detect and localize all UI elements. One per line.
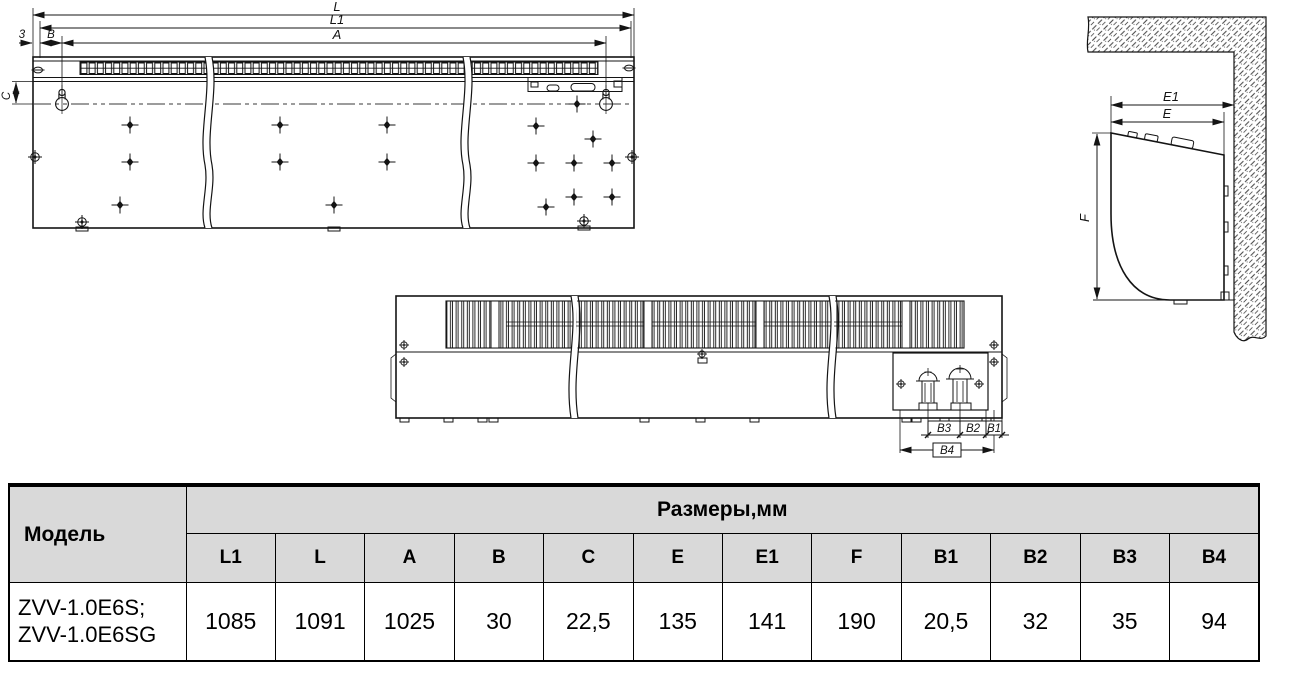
table-row: ZVV-1.0E6S; ZVV-1.0E6SG 1085 1091 1025 3… <box>9 583 1259 662</box>
dimensions-table: Модель Размеры,мм L1 L A B C E E1 F B1 B… <box>8 483 1260 662</box>
value-cell-A: 1025 <box>365 583 454 662</box>
value-cell-E1: 141 <box>722 583 811 662</box>
dim-label-E1: E1 <box>1163 89 1179 104</box>
col-header-B4: B4 <box>1169 534 1259 583</box>
col-header-F: F <box>812 534 901 583</box>
datasheet-page: L L1 A 3 B C <box>0 0 1314 686</box>
value-cell-B2: 32 <box>991 583 1080 662</box>
dim-label-B4: B4 <box>940 445 954 457</box>
break-lines <box>203 57 472 228</box>
cable-entry-box <box>893 353 988 410</box>
value-cell-B1: 20,5 <box>901 583 990 662</box>
value-cell-B3: 35 <box>1080 583 1169 662</box>
front-extension-lines <box>12 8 634 104</box>
bottom-view-drawing: B3 B2 B1 B4 <box>388 288 1013 468</box>
col-header-B3: B3 <box>1080 534 1169 583</box>
dim-label-3: 3 <box>19 29 26 41</box>
model-name-line2: ZVV-1.0E6SG <box>18 622 185 648</box>
keyhole-slot-icon <box>56 85 69 114</box>
wall-section <box>1087 17 1266 341</box>
col-header-E: E <box>633 534 722 583</box>
value-cell-C: 22,5 <box>544 583 633 662</box>
front-dimensions: L L1 A 3 B C <box>1 0 634 103</box>
dimensions-group-header: Размеры,мм <box>186 485 1259 534</box>
col-header-L1: L1 <box>186 534 275 583</box>
dim-label-A: A <box>332 27 342 42</box>
value-cell-B4: 94 <box>1169 583 1259 662</box>
cable-gland-large <box>946 365 974 403</box>
dim-label-L1: L1 <box>330 12 344 27</box>
bottom-feet <box>400 418 991 422</box>
model-cell: ZVV-1.0E6S; ZVV-1.0E6SG <box>9 583 186 662</box>
mounting-hole-marks <box>28 96 639 232</box>
side-view-drawing: E1 E F <box>1078 8 1314 353</box>
value-cell-B: 30 <box>454 583 543 662</box>
col-header-A: A <box>365 534 454 583</box>
column-header-row: L1 L A B C E E1 F B1 B2 B3 B4 <box>9 534 1259 583</box>
col-header-B2: B2 <box>991 534 1080 583</box>
col-header-L: L <box>275 534 364 583</box>
dim-label-B: B <box>47 29 55 41</box>
model-name-line1: ZVV-1.0E6S; <box>18 595 185 621</box>
discharge-grille <box>446 301 964 348</box>
keyhole-slot-icon <box>600 85 613 114</box>
dim-label-B1: B1 <box>987 423 1001 435</box>
dim-label-B2: B2 <box>966 423 981 435</box>
bottom-body <box>391 296 1007 422</box>
bottom-dimensions: B3 B2 B1 B4 <box>900 403 1009 457</box>
col-header-E1: E1 <box>722 534 811 583</box>
value-cell-F: 190 <box>812 583 901 662</box>
dim-label-F: F <box>1077 213 1092 222</box>
col-header-C: C <box>544 534 633 583</box>
dim-label-E: E <box>1163 106 1172 121</box>
dim-label-B3: B3 <box>937 423 952 435</box>
value-cell-E: 135 <box>633 583 722 662</box>
dim-label-C: C <box>1 91 13 100</box>
front-view-drawing: L L1 A 3 B C <box>5 0 675 255</box>
unit-profile <box>1093 128 1234 304</box>
value-cell-L1: 1085 <box>186 583 275 662</box>
col-header-B1: B1 <box>901 534 990 583</box>
side-dimensions: E1 E F <box>1077 89 1234 299</box>
model-column-header: Модель <box>9 485 186 583</box>
cable-gland-small <box>916 368 940 403</box>
value-cell-L: 1091 <box>275 583 364 662</box>
col-header-B: B <box>454 534 543 583</box>
